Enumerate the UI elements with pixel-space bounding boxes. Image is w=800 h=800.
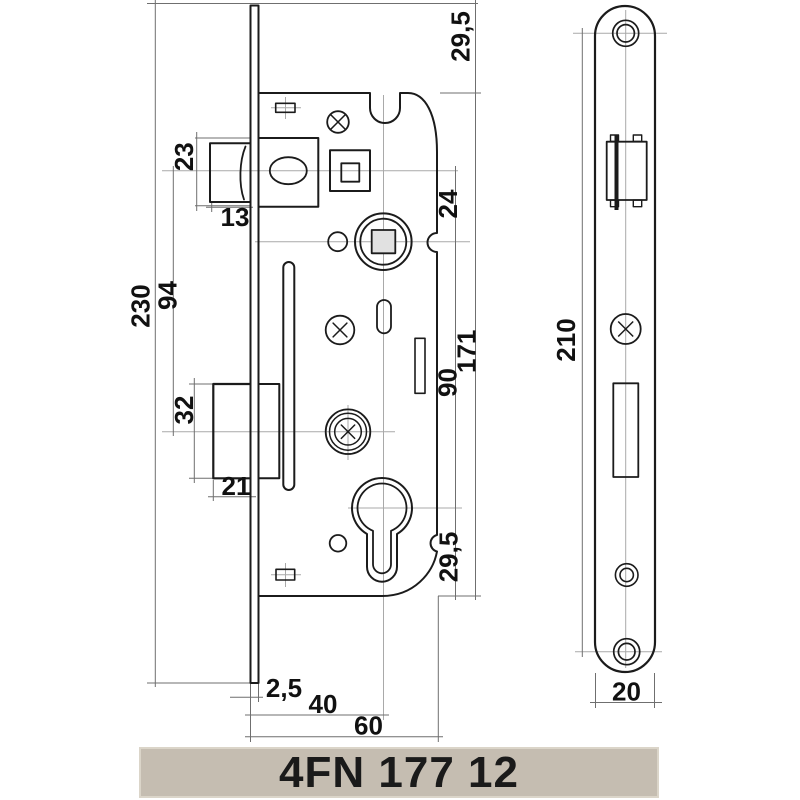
technical-drawing-page: 230 94 23 13 32 21 24 90 171 29,5 29,5 2… [0,0,800,800]
front-view [595,6,655,672]
dim-label-23: 23 [169,142,199,171]
cylinder-side-circle [330,535,347,552]
dim-label-230: 230 [126,284,156,327]
cylinder-fixing-hole-inner [620,568,633,581]
latch-bevel-curve [240,147,245,200]
cylinder-fixing-hole-outer [615,564,638,587]
dim-label-40: 40 [309,689,338,719]
dim-label-2-5: 2,5 [266,673,302,703]
faceplate-side-view [251,6,259,684]
dim-label-29-5-top: 29,5 [446,11,476,62]
latch-window [607,142,647,200]
dim-label-21: 21 [222,471,251,501]
dim-label-210: 210 [551,318,581,361]
dim-label-171: 171 [452,330,482,373]
stop-slot [415,338,425,393]
product-code: 4FN 177 12 [279,748,519,798]
deadbolt [213,384,250,478]
dim-label-94: 94 [153,281,183,310]
euro-cylinder-hole-inner [358,484,407,574]
dim-label-29-5-bottom: 29,5 [434,532,464,583]
mortise-lock-technical-drawing: 230 94 23 13 32 21 24 90 171 29,5 29,5 2… [0,0,800,800]
spindle-guide-inner-square [341,163,359,181]
latch-tab-bottom-right [633,200,641,207]
latch-tab-top-right [633,135,641,142]
screw-top-cross-icon [330,114,345,129]
screw-middle-cross-icon [333,323,347,337]
deadbolt-guide-box [259,384,280,478]
dim-label-20: 20 [612,677,641,707]
dim-label-24: 24 [433,189,463,218]
dim-label-32: 32 [169,396,199,425]
faceplate-front-view [595,6,655,672]
latch-guide-box [259,138,319,207]
product-code-bar: 4FN 177 12 [139,747,659,798]
dimension-lines [147,0,662,742]
side-view [210,6,437,684]
follower-square-hole [372,230,396,253]
euro-cylinder-hole-outer [352,478,412,582]
dim-label-13: 13 [221,202,250,232]
guide-slot-long [283,262,294,490]
dim-label-60: 60 [354,711,383,741]
